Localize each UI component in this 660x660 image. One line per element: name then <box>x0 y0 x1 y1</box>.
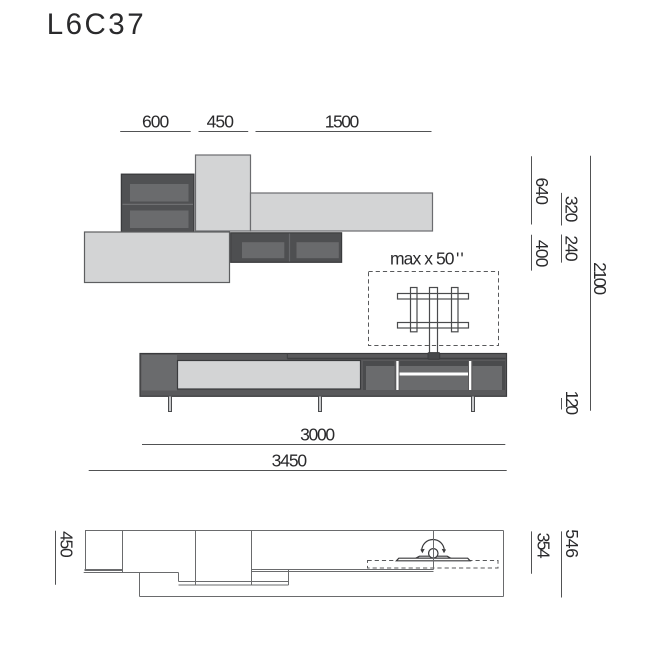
svg-text:354: 354 <box>533 533 553 559</box>
svg-text:3450: 3450 <box>272 450 308 470</box>
svg-text:'': '' <box>456 249 465 269</box>
svg-text:max x 50: max x 50 <box>390 249 455 269</box>
svg-text:2100: 2100 <box>590 262 610 295</box>
svg-text:450: 450 <box>57 531 77 558</box>
svg-text:640: 640 <box>532 177 552 205</box>
svg-text:400: 400 <box>532 240 552 268</box>
svg-text:600: 600 <box>142 112 170 132</box>
svg-text:240: 240 <box>561 235 581 261</box>
svg-text:3000: 3000 <box>300 424 335 444</box>
svg-text:120: 120 <box>562 391 582 416</box>
svg-text:546: 546 <box>562 529 582 558</box>
svg-text:1500: 1500 <box>325 112 360 132</box>
svg-text:L6C37: L6C37 <box>47 8 146 41</box>
svg-text:320: 320 <box>561 196 581 223</box>
svg-text:450: 450 <box>207 112 235 132</box>
